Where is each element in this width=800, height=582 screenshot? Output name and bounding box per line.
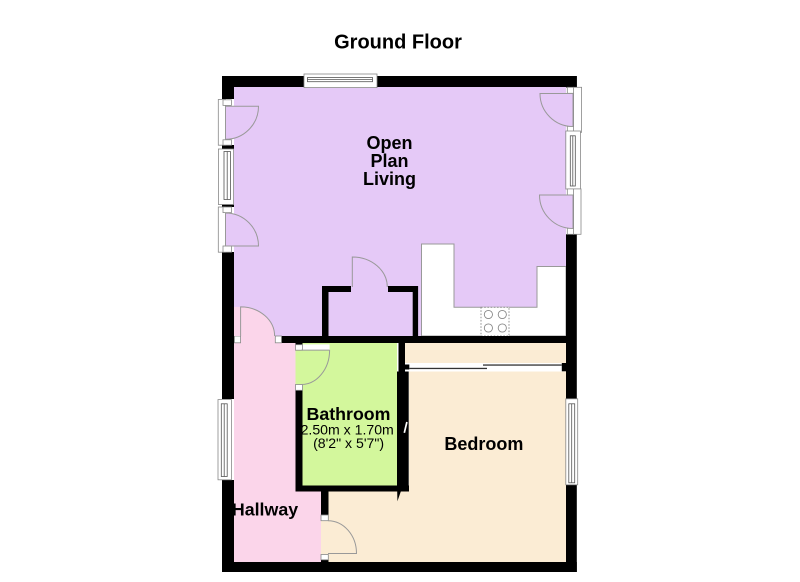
- svg-text:(8'2" x 5'7"): (8'2" x 5'7"): [313, 435, 384, 451]
- svg-text:Hallway: Hallway: [232, 500, 298, 520]
- svg-text:Ground Floor: Ground Floor: [334, 32, 462, 54]
- svg-text:Plan: Plan: [370, 151, 408, 171]
- svg-text:Bedroom: Bedroom: [444, 434, 523, 454]
- svg-text:Living: Living: [363, 169, 416, 189]
- svg-text:Open: Open: [366, 133, 412, 153]
